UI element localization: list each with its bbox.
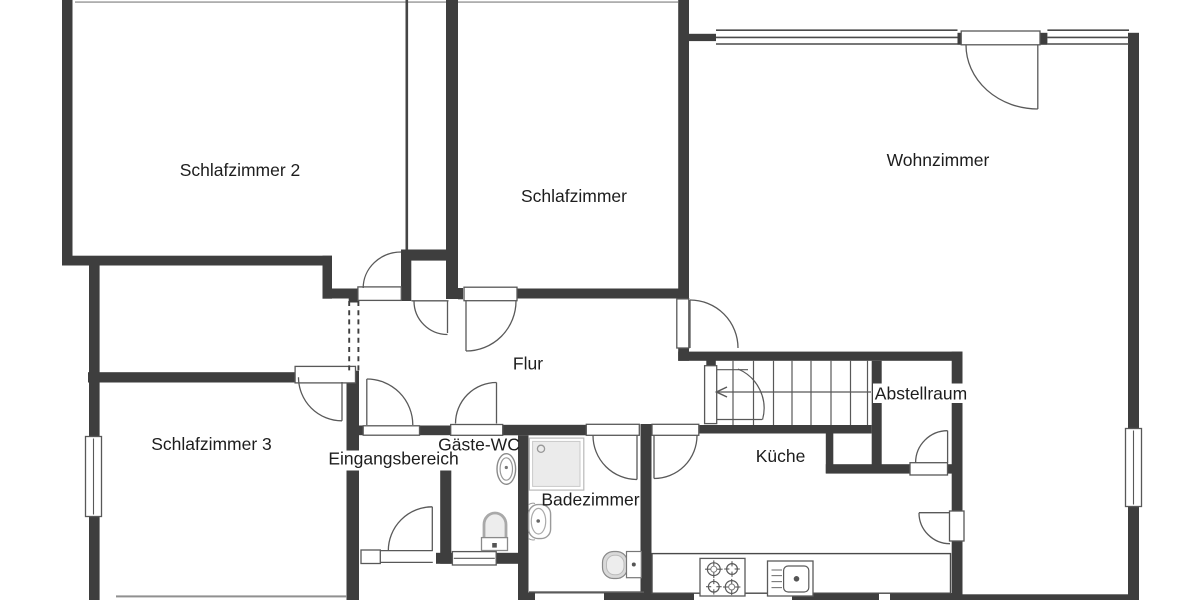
svg-text:Flur: Flur xyxy=(513,354,543,374)
svg-text:Gäste-WC: Gäste-WC xyxy=(438,435,520,455)
svg-text:Schlafzimmer: Schlafzimmer xyxy=(521,186,627,206)
svg-text:Badezimmer: Badezimmer xyxy=(541,490,639,510)
svg-text:Schlafzimmer 3: Schlafzimmer 3 xyxy=(151,434,272,454)
svg-text:Küche: Küche xyxy=(756,446,806,466)
svg-text:Wohnzimmer: Wohnzimmer xyxy=(887,150,990,170)
svg-text:Schlafzimmer 2: Schlafzimmer 2 xyxy=(180,160,301,180)
svg-text:Abstellraum: Abstellraum xyxy=(875,384,967,404)
